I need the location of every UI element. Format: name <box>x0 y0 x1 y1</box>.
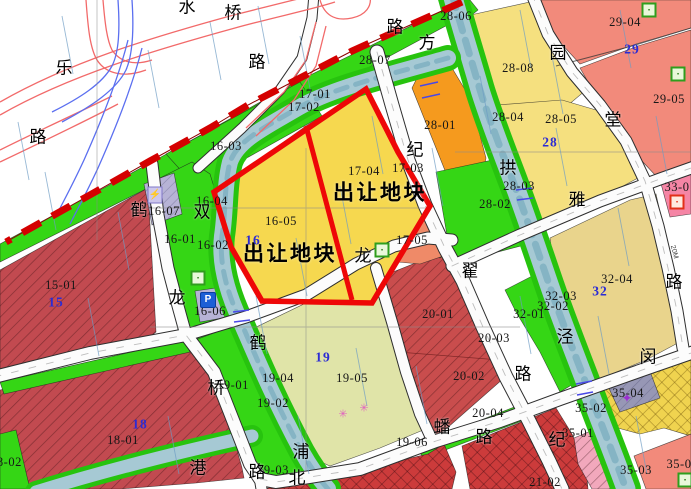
land-use-map: 出让地块出让地块15-0116-0116-0216-0316-0416-0516… <box>0 0 691 489</box>
map-geometry <box>0 0 691 489</box>
parcel-35-salmon <box>634 434 691 489</box>
